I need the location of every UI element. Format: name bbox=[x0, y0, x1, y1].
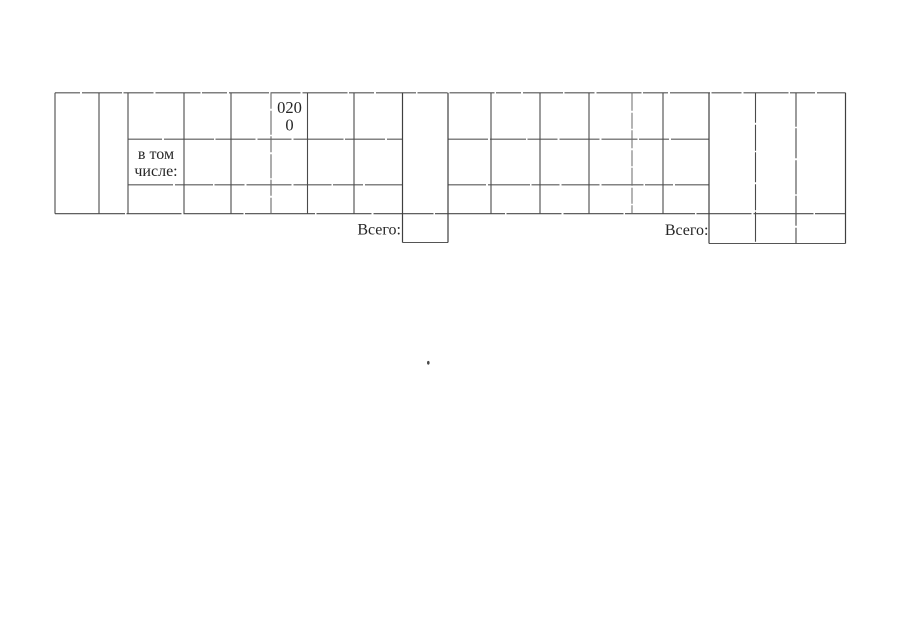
svg-text:в том: в том bbox=[138, 146, 174, 163]
svg-text:0: 0 bbox=[285, 116, 293, 135]
svg-text:Всего:: Всего: bbox=[357, 222, 401, 239]
svg-text:020: 020 bbox=[277, 98, 302, 117]
svg-text:Всего:: Всего: bbox=[665, 222, 709, 239]
svg-text:числе:: числе: bbox=[134, 163, 177, 180]
